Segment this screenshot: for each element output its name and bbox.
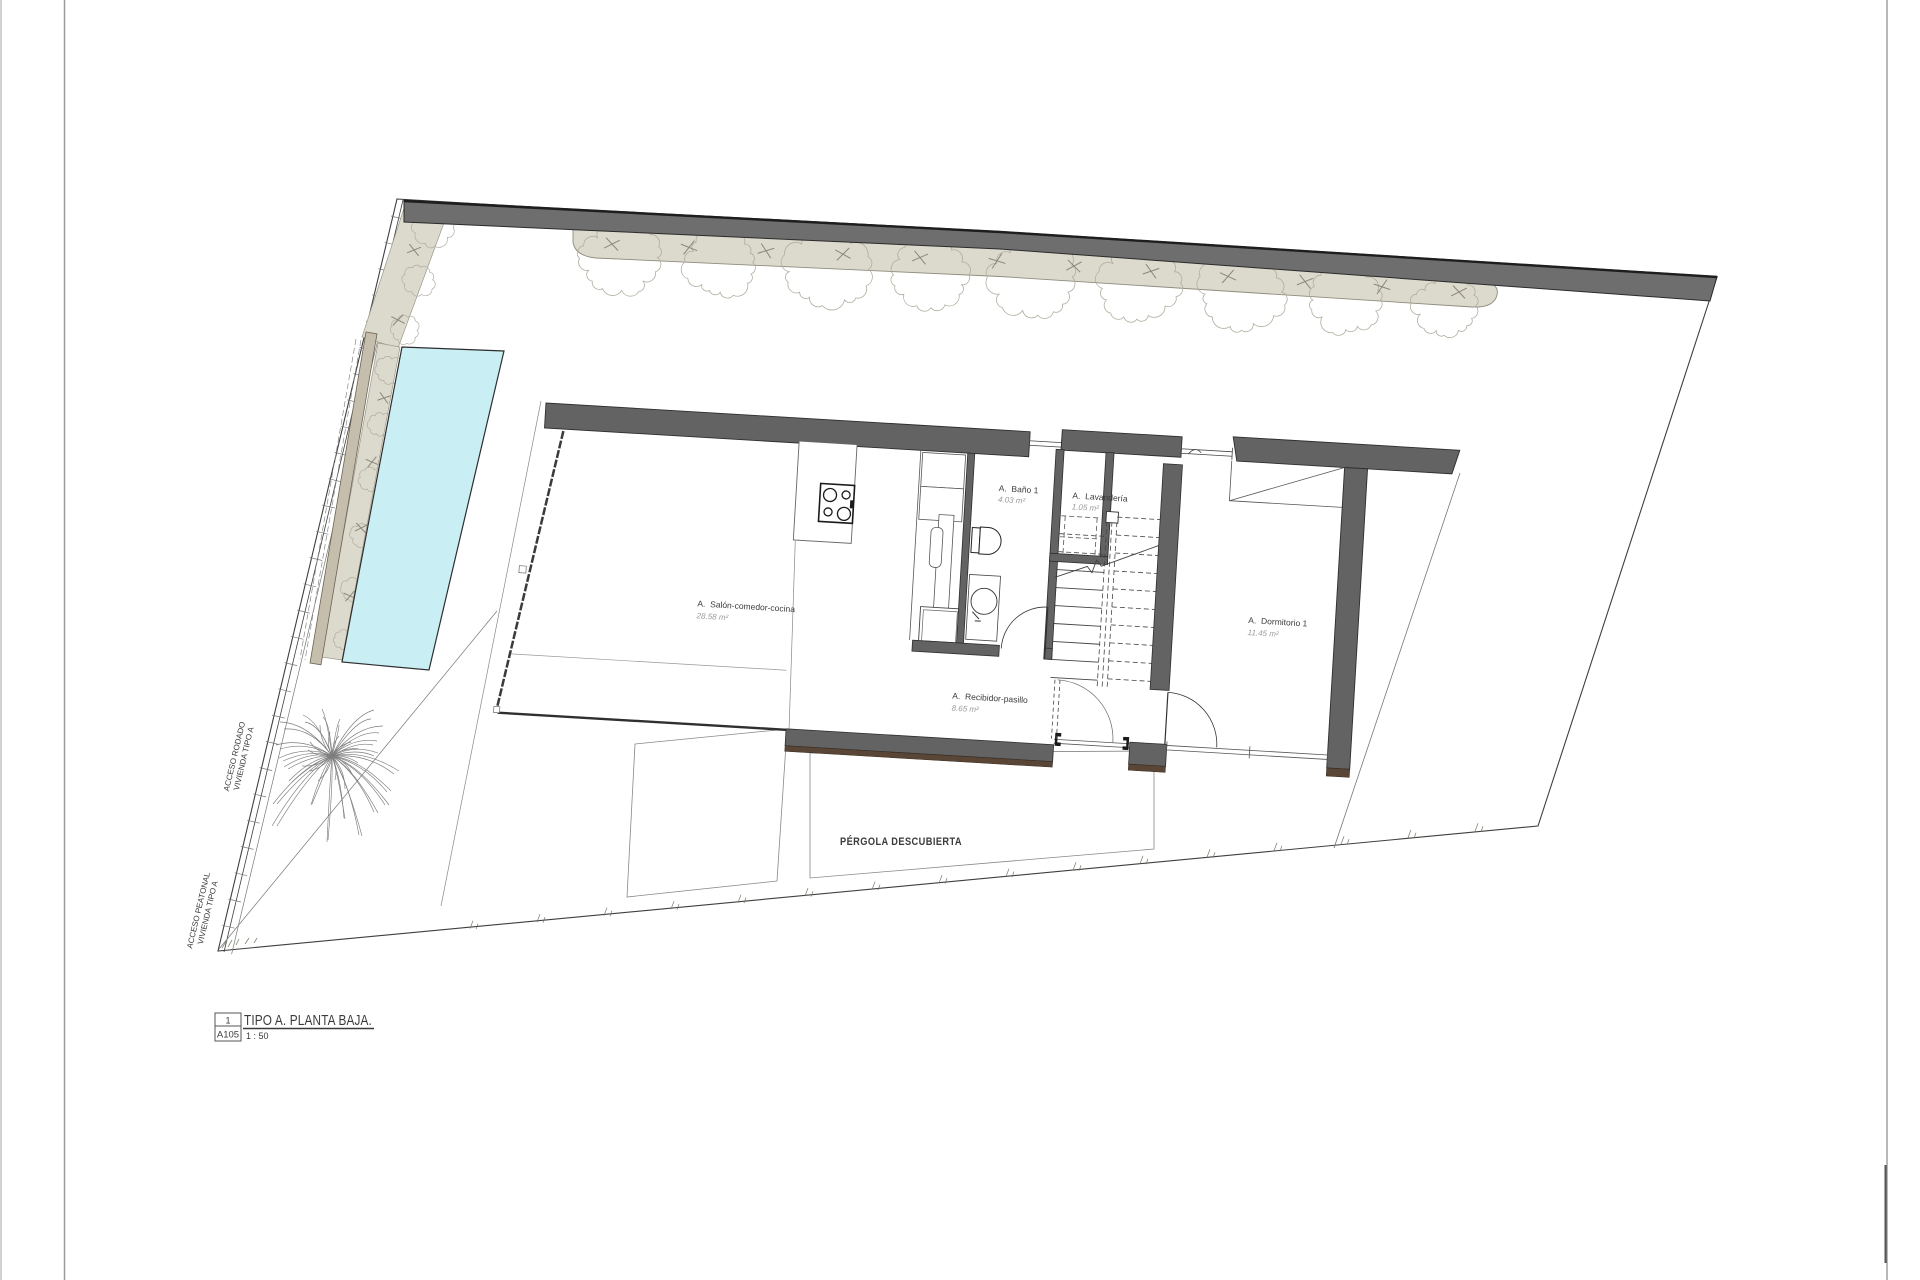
svg-text:4.03 m²: 4.03 m²: [998, 495, 1026, 506]
svg-text:8.65 m²: 8.65 m²: [951, 704, 979, 715]
svg-text:TIPO A. PLANTA BAJA.: TIPO A. PLANTA BAJA.: [244, 1012, 372, 1029]
svg-text:1: 1: [225, 1016, 230, 1026]
svg-text:1.05 m²: 1.05 m²: [1071, 502, 1099, 513]
svg-text:PÉRGOLA DESCUBIERTA: PÉRGOLA DESCUBIERTA: [840, 835, 962, 848]
svg-text:1 : 50: 1 : 50: [246, 1031, 269, 1041]
svg-text:11.45 m²: 11.45 m²: [1247, 628, 1279, 639]
svg-text:A105: A105: [217, 1030, 239, 1041]
